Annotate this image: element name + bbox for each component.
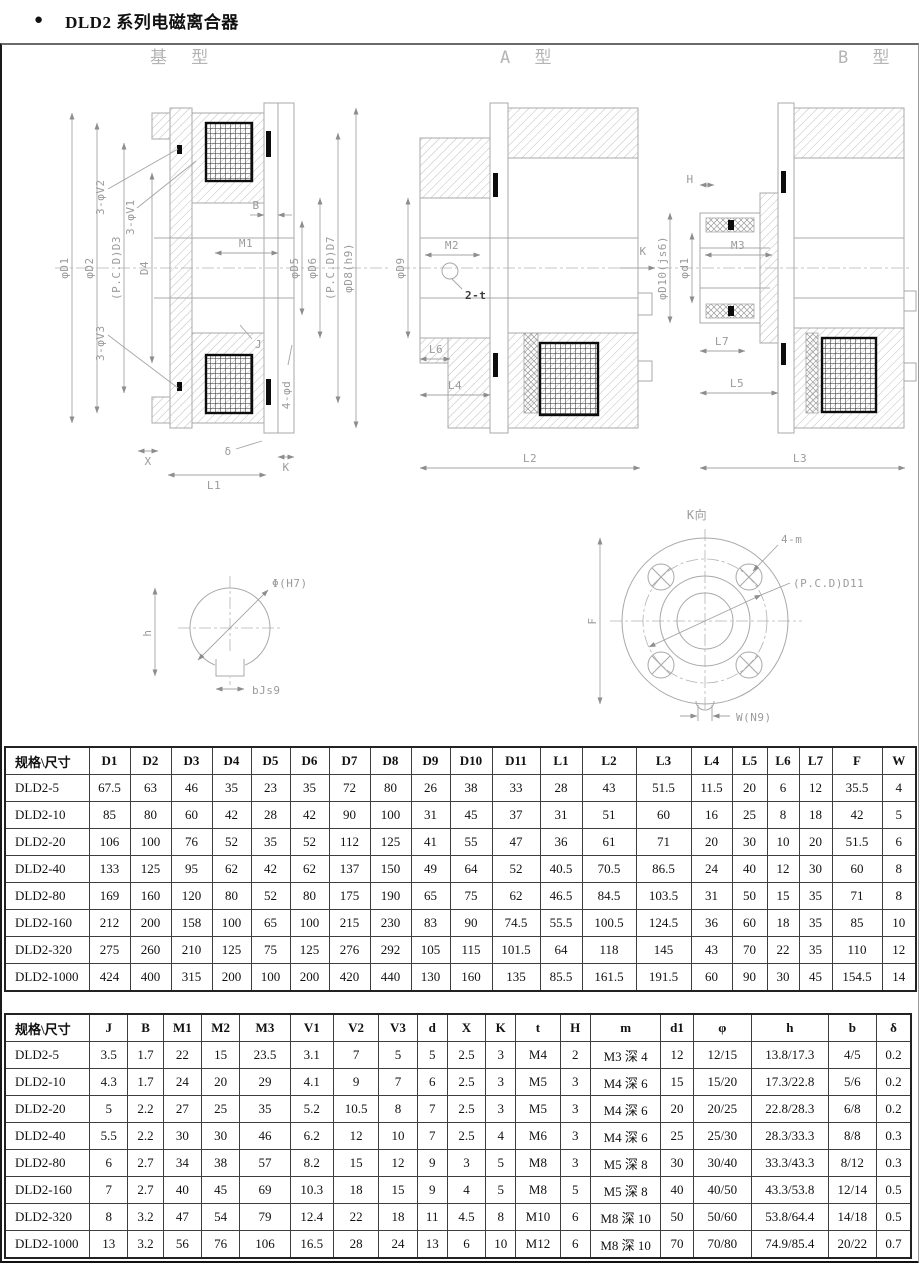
spec-cell: DLD2-5 (5, 775, 89, 802)
value-cell: 84.5 (582, 883, 636, 910)
value-cell: 22.8/28.3 (752, 1096, 829, 1123)
engineering-drawings: 基 型 φD1 φD2 (0, 43, 919, 743)
value-cell: 106 (89, 829, 130, 856)
column-header: X (447, 1014, 485, 1042)
value-cell: 25 (732, 802, 767, 829)
value-cell: 24 (163, 1069, 201, 1096)
value-cell: 3 (486, 1096, 516, 1123)
value-cell: 22 (163, 1042, 201, 1069)
value-cell: 2.2 (128, 1123, 163, 1150)
spec-cell: DLD2-1000 (5, 964, 89, 992)
value-cell: 50 (661, 1204, 693, 1231)
value-cell: 3 (560, 1069, 590, 1096)
value-cell: M3 深 4 (590, 1042, 661, 1069)
value-cell: 5.5 (90, 1123, 128, 1150)
value-cell: 43 (582, 775, 636, 802)
value-cell: 25 (201, 1096, 239, 1123)
value-cell: 135 (492, 964, 540, 992)
value-cell: 5 (90, 1096, 128, 1123)
value-cell: 60 (171, 802, 212, 829)
value-cell: 40 (661, 1177, 693, 1204)
column-header: M1 (163, 1014, 201, 1042)
value-cell: M5 深 8 (590, 1150, 661, 1177)
value-cell: 7 (417, 1123, 447, 1150)
value-cell: 210 (171, 937, 212, 964)
spec-cell: DLD2-160 (5, 910, 89, 937)
type-b-label: B 型 (838, 48, 896, 68)
column-header: M2 (201, 1014, 239, 1042)
value-cell: 43.3/53.8 (752, 1177, 829, 1204)
value-cell: 3 (560, 1123, 590, 1150)
value-cell: 125 (290, 937, 329, 964)
value-cell: 6 (560, 1204, 590, 1231)
column-header: D2 (130, 747, 171, 775)
value-cell: 17.3/22.8 (752, 1069, 829, 1096)
value-cell: 6 (882, 829, 916, 856)
value-cell: 26 (411, 775, 450, 802)
dim-label-l5: L5 (730, 377, 744, 390)
value-cell: 40.5 (540, 856, 582, 883)
dim-label-d8: φD8(h9) (342, 243, 355, 293)
spec-cell: DLD2-10 (5, 1069, 90, 1096)
value-cell: M12 (516, 1231, 560, 1259)
spec-cell: DLD2-20 (5, 829, 89, 856)
value-cell: 124.5 (636, 910, 691, 937)
value-cell: 14 (882, 964, 916, 992)
value-cell: 30/40 (693, 1150, 751, 1177)
value-cell: 12 (333, 1123, 378, 1150)
value-cell: 95 (171, 856, 212, 883)
table-row: DLD2-20106100765235521121254155473661712… (5, 829, 916, 856)
value-cell: 7 (417, 1096, 447, 1123)
column-header: L6 (767, 747, 799, 775)
value-cell: 15/20 (693, 1069, 751, 1096)
value-cell: 200 (130, 910, 171, 937)
value-cell: 5 (486, 1177, 516, 1204)
value-cell: 62 (212, 856, 251, 883)
value-cell: 42 (212, 802, 251, 829)
value-cell: 52 (251, 883, 290, 910)
value-cell: 5 (417, 1042, 447, 1069)
value-cell: 118 (582, 937, 636, 964)
value-cell: 133 (89, 856, 130, 883)
coil-a (540, 343, 598, 415)
value-cell: 0.2 (876, 1069, 911, 1096)
dim-label-delta: δ (224, 445, 231, 458)
value-cell: 74.9/85.4 (752, 1231, 829, 1259)
value-cell: 125 (212, 937, 251, 964)
value-cell: 276 (329, 937, 370, 964)
value-cell: 52 (212, 829, 251, 856)
value-cell: 83 (411, 910, 450, 937)
value-cell: 46 (171, 775, 212, 802)
dim-label-j: J (255, 338, 262, 351)
value-cell: 7 (90, 1177, 128, 1204)
flange-end-view: K向 4-m (P.C.D)D11 F W (586, 507, 864, 724)
value-cell: 45 (201, 1177, 239, 1204)
value-cell: 55.5 (540, 910, 582, 937)
value-cell: 35 (799, 910, 832, 937)
value-cell: 100 (251, 964, 290, 992)
value-cell: 70 (661, 1231, 693, 1259)
value-cell: 12 (379, 1150, 417, 1177)
value-cell: 8 (767, 802, 799, 829)
column-header: L1 (540, 747, 582, 775)
value-cell: 47 (163, 1204, 201, 1231)
value-cell: 31 (691, 883, 732, 910)
column-header: D11 (492, 747, 540, 775)
value-cell: 440 (370, 964, 411, 992)
value-cell: 7 (379, 1069, 417, 1096)
value-cell: 20 (732, 775, 767, 802)
value-cell: 25 (661, 1123, 693, 1150)
value-cell: 34 (163, 1150, 201, 1177)
value-cell: 22 (333, 1204, 378, 1231)
value-cell: 4/5 (828, 1042, 876, 1069)
column-header: D5 (251, 747, 290, 775)
value-cell: 50 (732, 883, 767, 910)
value-cell: 4.5 (447, 1204, 485, 1231)
dim-label-d11: (P.C.D)D11 (793, 577, 864, 590)
table-row: DLD2-401331259562426213715049645240.570.… (5, 856, 916, 883)
table-row: DLD2-10004244003152001002004204401301601… (5, 964, 916, 992)
value-cell: 105 (411, 937, 450, 964)
column-header: L4 (691, 747, 732, 775)
value-cell: 158 (171, 910, 212, 937)
spec-cell: DLD2-160 (5, 1177, 90, 1204)
value-cell: 20 (661, 1096, 693, 1123)
value-cell: 16 (691, 802, 732, 829)
value-cell: 10 (486, 1231, 516, 1259)
column-header: D9 (411, 747, 450, 775)
value-cell: 61 (582, 829, 636, 856)
value-cell: 42 (832, 802, 882, 829)
value-cell: 12 (799, 775, 832, 802)
value-cell: 41 (411, 829, 450, 856)
value-cell: 71 (636, 829, 691, 856)
value-cell: 35 (251, 829, 290, 856)
value-cell: 3 (486, 1042, 516, 1069)
value-cell: 6 (417, 1069, 447, 1096)
value-cell: 15 (333, 1150, 378, 1177)
value-cell: 70.5 (582, 856, 636, 883)
value-cell: 80 (290, 883, 329, 910)
value-cell: 31 (540, 802, 582, 829)
value-cell: 125 (130, 856, 171, 883)
dim-label-k-view: K (639, 245, 646, 258)
value-cell: 125 (370, 829, 411, 856)
value-cell: 5/6 (828, 1069, 876, 1096)
value-cell: 14/18 (828, 1204, 876, 1231)
value-cell: 5 (486, 1150, 516, 1177)
value-cell: 3 (447, 1150, 485, 1177)
dim-label-f: F (586, 617, 599, 624)
value-cell: 110 (832, 937, 882, 964)
value-cell: 100 (212, 910, 251, 937)
value-cell: 85.5 (540, 964, 582, 992)
column-header: D10 (450, 747, 492, 775)
value-cell: 30 (661, 1150, 693, 1177)
column-header: K (486, 1014, 516, 1042)
value-cell: M8 深 10 (590, 1231, 661, 1259)
value-cell: 12/15 (693, 1042, 751, 1069)
column-header: d1 (661, 1014, 693, 1042)
value-cell: 5 (560, 1177, 590, 1204)
value-cell: 4 (486, 1123, 516, 1150)
spec-cell: DLD2-320 (5, 1204, 90, 1231)
value-cell: 35 (212, 775, 251, 802)
column-header: φ (693, 1014, 751, 1042)
dim-label-4m: 4-m (781, 533, 802, 546)
value-cell: 0.2 (876, 1096, 911, 1123)
value-cell: 40 (163, 1177, 201, 1204)
value-cell: 115 (450, 937, 492, 964)
column-header: δ (876, 1014, 911, 1042)
column-header: L3 (636, 747, 691, 775)
value-cell: 112 (329, 829, 370, 856)
table-row: DLD2-16021220015810065100215230839074.55… (5, 910, 916, 937)
column-header: d (417, 1014, 447, 1042)
value-cell: 10 (767, 829, 799, 856)
column-header: D3 (171, 747, 212, 775)
column-header: D7 (329, 747, 370, 775)
value-cell: 62 (492, 883, 540, 910)
value-cell: 5 (379, 1042, 417, 1069)
shaft-section-drawing: Φ(H7) h bJs9 (141, 576, 308, 697)
table-row: DLD2-567.563463523357280263833284351.511… (5, 775, 916, 802)
value-cell: 12 (882, 937, 916, 964)
page-title: DLD2 系列电磁离合器 (65, 8, 239, 33)
value-cell: 35 (799, 937, 832, 964)
value-cell: 47 (492, 829, 540, 856)
table-row: DLD2-405.52.23030466.2121072.54M63M4 深 6… (5, 1123, 911, 1150)
column-header: V1 (290, 1014, 333, 1042)
value-cell: 30 (767, 964, 799, 992)
value-cell: 0.2 (876, 1042, 911, 1069)
column-header: b (828, 1014, 876, 1042)
table-row: DLD2-32027526021012575125276292105115101… (5, 937, 916, 964)
value-cell: 2.5 (447, 1096, 485, 1123)
value-cell: 10 (882, 910, 916, 937)
value-cell: 3.5 (90, 1042, 128, 1069)
value-cell: 0.5 (876, 1204, 911, 1231)
value-cell: 11 (417, 1204, 447, 1231)
value-cell: 6 (560, 1231, 590, 1259)
value-cell: 5 (882, 802, 916, 829)
dim-label-d6: φD6 (306, 257, 319, 278)
value-cell: 20 (201, 1069, 239, 1096)
value-cell: 90 (329, 802, 370, 829)
value-cell: 2.7 (128, 1150, 163, 1177)
value-cell: 8 (486, 1204, 516, 1231)
value-cell: 40 (732, 856, 767, 883)
value-cell: 35 (240, 1096, 290, 1123)
dim-label-l1: L1 (207, 479, 221, 492)
value-cell: M6 (516, 1123, 560, 1150)
dim-label-d3: (P.C.D)D3 (110, 236, 123, 300)
value-cell: 2 (560, 1042, 590, 1069)
dim-label-d4: D4 (138, 261, 151, 275)
value-cell: 28.3/33.3 (752, 1123, 829, 1150)
value-cell: 2.5 (447, 1123, 485, 1150)
value-cell: 0.3 (876, 1150, 911, 1177)
coil-top (206, 123, 252, 181)
table-row: DLD2-16072.740456910.31815945M85M5 深 840… (5, 1177, 911, 1204)
value-cell: 6 (447, 1231, 485, 1259)
value-cell: 2.7 (128, 1177, 163, 1204)
spec-cell: DLD2-20 (5, 1096, 90, 1123)
spec-cell: DLD2-320 (5, 937, 89, 964)
value-cell: 20/22 (828, 1231, 876, 1259)
k-view-label: K向 (687, 507, 707, 522)
dim-label-d1b: φd1 (678, 257, 691, 278)
value-cell: 400 (130, 964, 171, 992)
value-cell: 4 (882, 775, 916, 802)
value-cell: 76 (171, 829, 212, 856)
value-cell: 90 (732, 964, 767, 992)
dim-label-d2: φD2 (83, 257, 96, 278)
base-type-label: 基 型 (150, 48, 215, 68)
dim-label-l2: L2 (523, 452, 537, 465)
value-cell: 215 (329, 910, 370, 937)
value-cell: 120 (171, 883, 212, 910)
value-cell: 28 (540, 775, 582, 802)
value-cell: 90 (450, 910, 492, 937)
value-cell: 3 (560, 1096, 590, 1123)
table-row: DLD2-32083.247547912.42218114.58M106M8 深… (5, 1204, 911, 1231)
dim-label-l7: L7 (715, 335, 729, 348)
value-cell: 6 (90, 1150, 128, 1177)
value-cell: 56 (163, 1231, 201, 1259)
value-cell: 8 (379, 1096, 417, 1123)
dim-label-fd: 4-φd (280, 381, 293, 410)
coil-bottom (206, 355, 252, 413)
value-cell: 85 (832, 910, 882, 937)
value-cell: 11.5 (691, 775, 732, 802)
table-row: DLD2-8062.73438578.21512935M83M5 深 83030… (5, 1150, 911, 1177)
value-cell: 86.5 (636, 856, 691, 883)
value-cell: 275 (89, 937, 130, 964)
value-cell: 80 (130, 802, 171, 829)
value-cell: 292 (370, 937, 411, 964)
value-cell: 154.5 (832, 964, 882, 992)
table1-header-row: 规格\尺寸D1D2D3D4D5D6D7D8D9D10D11L1L2L3L4L5L… (5, 747, 916, 775)
value-cell: 65 (251, 910, 290, 937)
value-cell: 38 (201, 1150, 239, 1177)
type-b-drawing: B 型 H (656, 48, 916, 468)
value-cell: 43 (691, 937, 732, 964)
spec-cell: DLD2-40 (5, 1123, 90, 1150)
base-type-drawing: 基 型 φD1 φD2 (55, 48, 388, 492)
column-header: m (590, 1014, 661, 1042)
table2-header-row: 规格\尺寸JBM1M2M3V1V2V3dXKtHmd1φhbδ (5, 1014, 911, 1042)
value-cell: 27 (163, 1096, 201, 1123)
value-cell: 24 (691, 856, 732, 883)
value-cell: 64 (450, 856, 492, 883)
value-cell: 51.5 (636, 775, 691, 802)
value-cell: 12/14 (828, 1177, 876, 1204)
value-cell: 67.5 (89, 775, 130, 802)
value-cell: 100 (370, 802, 411, 829)
value-cell: 76 (201, 1231, 239, 1259)
dim-label-v2: 3-φV2 (94, 179, 107, 215)
value-cell: 18 (333, 1177, 378, 1204)
dim-label-2t: 2-t (465, 289, 486, 302)
value-cell: 35 (290, 775, 329, 802)
value-cell: 31 (411, 802, 450, 829)
value-cell: 200 (212, 964, 251, 992)
dim-label-d5: φD5 (288, 257, 301, 278)
value-cell: 18 (379, 1204, 417, 1231)
value-cell: 45 (799, 964, 832, 992)
value-cell: 28 (333, 1231, 378, 1259)
column-header: h (752, 1014, 829, 1042)
value-cell: 52 (290, 829, 329, 856)
value-cell: 15 (661, 1069, 693, 1096)
spec-cell: DLD2-10 (5, 802, 89, 829)
value-cell: 101.5 (492, 937, 540, 964)
value-cell: 35 (799, 883, 832, 910)
value-cell: 4.1 (290, 1069, 333, 1096)
dim-label-phi-h7: Φ(H7) (272, 577, 308, 590)
value-cell: 191.5 (636, 964, 691, 992)
table-row: DLD2-10858060422842901003145373151601625… (5, 802, 916, 829)
value-cell: 18 (799, 802, 832, 829)
value-cell: 75 (450, 883, 492, 910)
value-cell: 15 (201, 1042, 239, 1069)
value-cell: 12 (767, 856, 799, 883)
column-header: W (882, 747, 916, 775)
value-cell: M5 (516, 1096, 560, 1123)
value-cell: 60 (691, 964, 732, 992)
value-cell: 315 (171, 964, 212, 992)
value-cell: 169 (89, 883, 130, 910)
value-cell: 40/50 (693, 1177, 751, 1204)
dim-label-l3: L3 (793, 452, 807, 465)
value-cell: 51.5 (832, 829, 882, 856)
value-cell: 8/8 (828, 1123, 876, 1150)
value-cell: 5.2 (290, 1096, 333, 1123)
value-cell: 12 (661, 1042, 693, 1069)
table-row: DLD2-2052.22725355.210.5872.53M53M4 深 62… (5, 1096, 911, 1123)
value-cell: 23 (251, 775, 290, 802)
value-cell: 9 (417, 1150, 447, 1177)
value-cell: 145 (636, 937, 691, 964)
dim-label-v3: 3-φV3 (94, 325, 107, 361)
value-cell: 137 (329, 856, 370, 883)
value-cell: 9 (417, 1177, 447, 1204)
value-cell: 420 (329, 964, 370, 992)
value-cell: 100.5 (582, 910, 636, 937)
value-cell: 9 (333, 1069, 378, 1096)
bullet-icon: ● (34, 13, 43, 28)
table-row: DLD2-8016916012080528017519065756246.584… (5, 883, 916, 910)
column-header: J (90, 1014, 128, 1042)
value-cell: 70/80 (693, 1231, 751, 1259)
value-cell: 103.5 (636, 883, 691, 910)
value-cell: 28 (251, 802, 290, 829)
dim-label-x: X (144, 455, 151, 468)
value-cell: 2.2 (128, 1096, 163, 1123)
value-cell: 16.5 (290, 1231, 333, 1259)
value-cell: 6.2 (290, 1123, 333, 1150)
value-cell: 33.3/43.3 (752, 1150, 829, 1177)
table-row: DLD2-53.51.7221523.53.17552.53M42M3 深 41… (5, 1042, 911, 1069)
value-cell: 52 (492, 856, 540, 883)
value-cell: 20 (691, 829, 732, 856)
value-cell: 62 (290, 856, 329, 883)
dim-label-d10: φD10(js6) (656, 236, 669, 300)
